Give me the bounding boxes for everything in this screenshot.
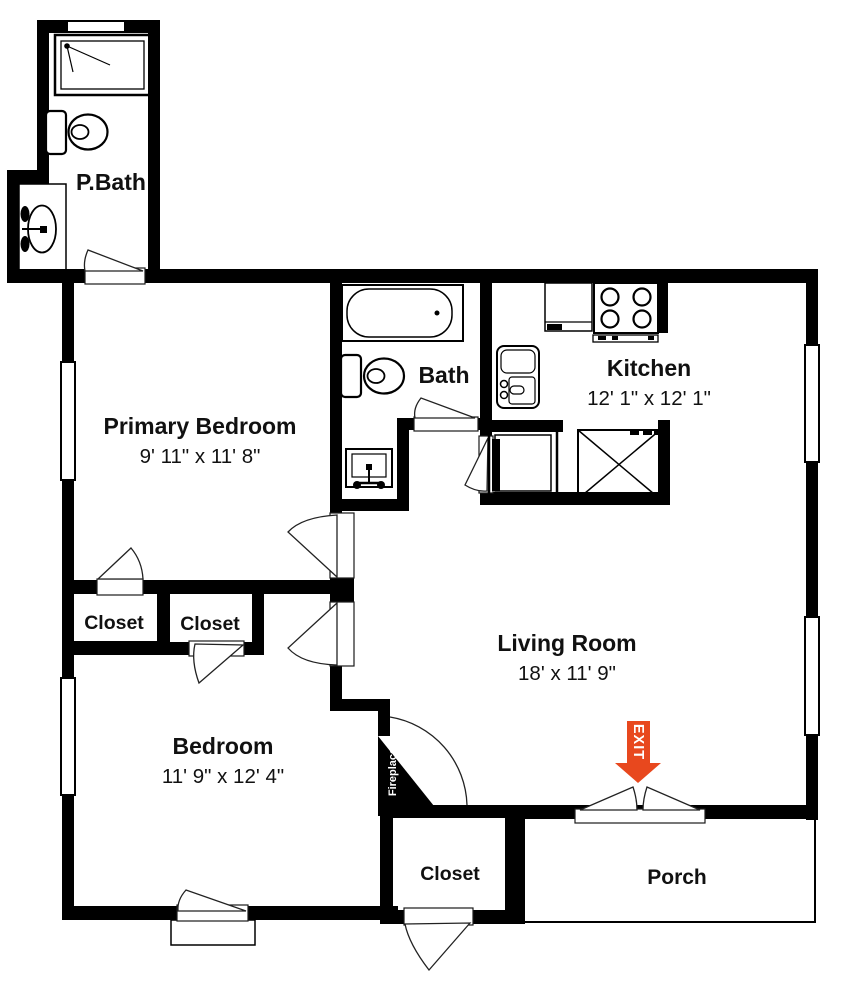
room-name: Closet	[180, 613, 240, 635]
stove-icon	[593, 283, 658, 342]
room-name: Living Room	[497, 630, 636, 656]
room-label-bath: Bath	[418, 362, 469, 388]
window	[805, 617, 819, 735]
toilet-icon	[341, 355, 404, 397]
exit-label: EXIT	[630, 724, 646, 760]
door-opening	[575, 809, 705, 823]
room-name: Kitchen	[607, 355, 691, 381]
bathtub-icon	[342, 285, 463, 341]
door-swing	[405, 923, 470, 970]
room-dims: 9' 11" x 11' 8"	[140, 445, 261, 468]
wall-segment	[62, 641, 170, 655]
porch-outline	[171, 818, 815, 945]
door-opening	[97, 579, 143, 595]
water-heater-icon	[578, 430, 660, 499]
room-name: P.Bath	[76, 169, 146, 195]
door-opening	[404, 908, 473, 925]
room-name: Bedroom	[173, 733, 274, 759]
room-dims: 18' x 11' 9"	[518, 662, 616, 685]
room-label-closet-a: Closet	[84, 612, 144, 634]
room-label-bedroom: Bedroom 11' 9" x 12' 4"	[162, 733, 284, 788]
room-name: Bath	[418, 362, 469, 388]
room-dims: 11' 9" x 12' 4"	[162, 765, 284, 788]
door-swing	[288, 603, 337, 665]
room-name: Closet	[84, 612, 144, 634]
wall-segment	[397, 418, 409, 505]
window	[61, 362, 75, 480]
room-name: Porch	[647, 866, 707, 889]
window	[67, 21, 125, 32]
kitchen-counter-icon	[545, 283, 592, 331]
door-swing	[288, 515, 337, 577]
wall-segment	[7, 170, 19, 282]
door-swing	[194, 644, 243, 683]
window	[61, 678, 75, 795]
wall-segment	[330, 499, 409, 511]
room-label-kitchen: Kitchen 12' 1" x 12' 1"	[587, 355, 711, 410]
wall-segment	[505, 810, 525, 924]
room-name: Primary Bedroom	[103, 413, 296, 439]
floor-plan-svg: EXIT Fireplace P.Bath Primary Bedroom 9'…	[0, 0, 856, 1000]
fireplace-label: Fireplace	[387, 748, 399, 796]
door-stoop	[171, 920, 255, 945]
room-name: Closet	[420, 863, 480, 885]
walls	[7, 20, 818, 924]
room-label-living-room: Living Room 18' x 11' 9"	[497, 630, 636, 685]
pedestal-sink-icon	[19, 184, 66, 270]
exit-arrow: EXIT	[615, 721, 661, 783]
room-dims: 12' 1" x 12' 1"	[587, 387, 711, 410]
room-label-closet-b: Closet	[180, 613, 240, 635]
window	[805, 345, 819, 462]
door-opening	[414, 417, 478, 431]
door-swing	[84, 250, 143, 271]
room-label-closet-entry: Closet	[420, 863, 480, 885]
vanity-sink-icon	[346, 449, 392, 489]
door-swing	[415, 398, 475, 418]
toilet-icon	[46, 111, 108, 154]
wall-segment	[157, 594, 170, 641]
wall-segment	[480, 269, 492, 437]
door-swing	[580, 787, 637, 810]
wall-segment	[252, 580, 264, 655]
wall-segment	[378, 699, 390, 736]
door-swing	[465, 438, 488, 491]
room-label-primary-bedroom: Primary Bedroom 9' 11" x 11' 8"	[103, 413, 296, 468]
exit-arrow-head	[615, 763, 661, 783]
washer-icon	[489, 429, 557, 497]
shower-icon	[55, 35, 150, 95]
floor-plan-page: EXIT Fireplace P.Bath Primary Bedroom 9'…	[0, 0, 856, 1000]
wall-segment	[380, 806, 393, 924]
room-label-pbath: P.Bath	[76, 169, 146, 195]
door-swing	[98, 548, 143, 579]
room-label-porch: Porch	[647, 866, 707, 889]
wall-segment	[658, 283, 668, 333]
door-swing	[178, 890, 246, 911]
refrigerator-icon	[497, 346, 539, 408]
door-swing	[643, 787, 700, 810]
